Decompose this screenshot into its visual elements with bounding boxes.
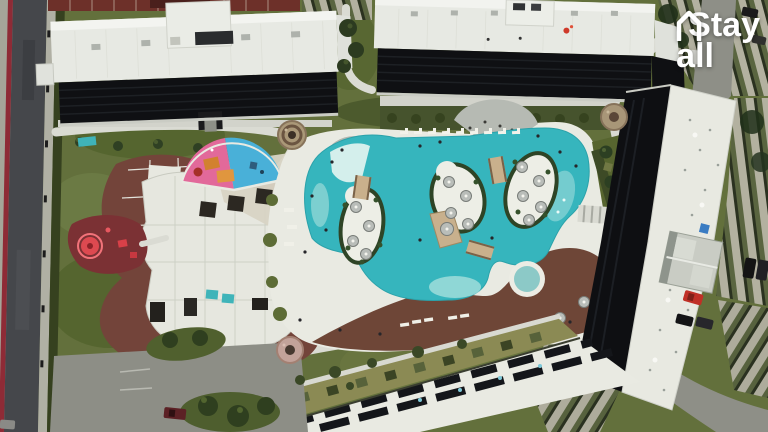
spa-pool (509, 261, 545, 297)
logo-text-all: all (676, 41, 714, 72)
house-outline-icon (676, 10, 702, 41)
building-b-wing (506, 0, 555, 26)
pool-complex (263, 99, 619, 352)
pool-bridge-1 (352, 175, 371, 200)
scene-canvas (0, 0, 768, 432)
building-r-annex (659, 231, 723, 293)
aerial-resort-photo: Stay all (0, 0, 768, 432)
gray-car (0, 420, 15, 430)
plaza-circle-south (277, 337, 303, 363)
stay-hall-logo: Stay all (676, 10, 760, 73)
teal-tarp (78, 136, 97, 147)
dark-red-car (163, 407, 186, 420)
plaza-circle-northwest (278, 121, 306, 149)
plaza-circle-northeast (601, 104, 627, 130)
tree-island-large (180, 392, 280, 432)
